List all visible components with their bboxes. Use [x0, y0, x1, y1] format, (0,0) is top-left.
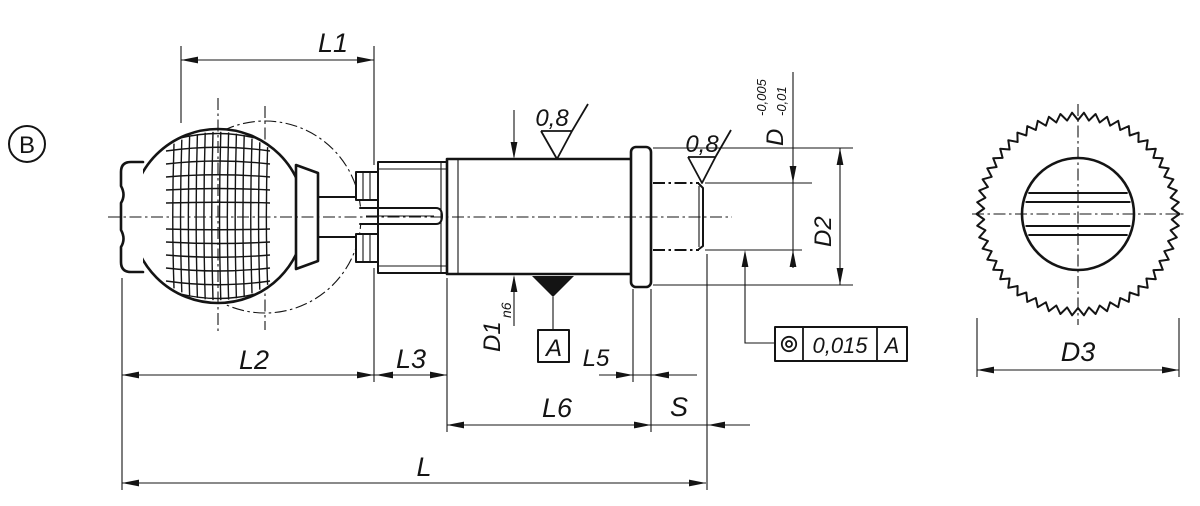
feature-control-frame: 0,015 A — [745, 253, 907, 361]
arrowhead-icon — [742, 250, 749, 267]
dim-L6: L6 — [542, 393, 573, 423]
arrowhead-icon — [122, 372, 139, 379]
dim-L2: L2 — [239, 345, 269, 375]
surface-finish-body: 0,8 — [535, 104, 588, 159]
arrowhead-icon — [977, 367, 994, 374]
dim-D-tol-lower: -0,01 — [774, 86, 789, 116]
fcf-leader — [745, 253, 775, 343]
dim-D1: D1 — [479, 321, 506, 352]
dim-D1-fit: n6 — [498, 302, 514, 318]
arrowhead-icon — [634, 422, 651, 429]
arrowhead-icon — [790, 250, 797, 267]
arrowhead-icon — [511, 142, 518, 159]
end-view: D3 — [972, 104, 1186, 377]
arrowhead-icon — [652, 372, 669, 379]
arrowhead-icon — [430, 372, 447, 379]
arrowhead-icon — [447, 422, 464, 429]
dim-L5: L5 — [583, 345, 610, 372]
arrowhead-icon — [837, 268, 844, 285]
arrowhead-icon — [616, 372, 633, 379]
dim-D3: D3 — [1061, 337, 1096, 367]
fcf-value: 0,015 — [812, 333, 868, 358]
dim-D2: D2 — [810, 216, 837, 247]
dim-S: S — [670, 392, 688, 422]
arrowhead-icon — [181, 57, 198, 64]
arrowhead-icon — [122, 480, 139, 487]
dim-D: D — [762, 129, 789, 146]
bushing-flange-top — [356, 172, 378, 200]
arrowhead-icon — [376, 372, 393, 379]
arrowhead-icon — [708, 422, 725, 429]
technical-drawing-page: B — [0, 0, 1200, 506]
datum-letter: A — [544, 335, 562, 362]
arrowhead-icon — [837, 148, 844, 165]
ball-knob — [121, 129, 318, 303]
detail-view-label: B — [9, 126, 45, 162]
roughness-value: 0,8 — [535, 105, 569, 132]
arrowhead-icon — [357, 57, 374, 64]
roughness-value: 0,8 — [685, 131, 719, 158]
datum-triangle-icon — [532, 276, 574, 297]
dim-D-tol-upper: -0,005 — [754, 78, 769, 116]
detail-label-text: B — [19, 132, 35, 159]
arrowhead-icon — [511, 275, 518, 292]
knurl-line — [166, 202, 270, 203]
datum-feature-symbol: A — [532, 276, 574, 362]
bushing-flange-bottom — [356, 234, 378, 262]
arrowhead-icon — [790, 166, 797, 183]
arrowhead-icon — [689, 480, 706, 487]
fcf-datum: A — [883, 333, 900, 358]
dim-L1: L1 — [318, 28, 348, 58]
indexing-plunger-drawing: B — [0, 0, 1200, 506]
dim-L3: L3 — [396, 344, 426, 374]
arrowhead-icon — [1162, 367, 1179, 374]
arrowhead-icon — [357, 372, 374, 379]
surface-finish-pin: 0,8 — [685, 130, 731, 183]
dim-L: L — [416, 452, 431, 482]
